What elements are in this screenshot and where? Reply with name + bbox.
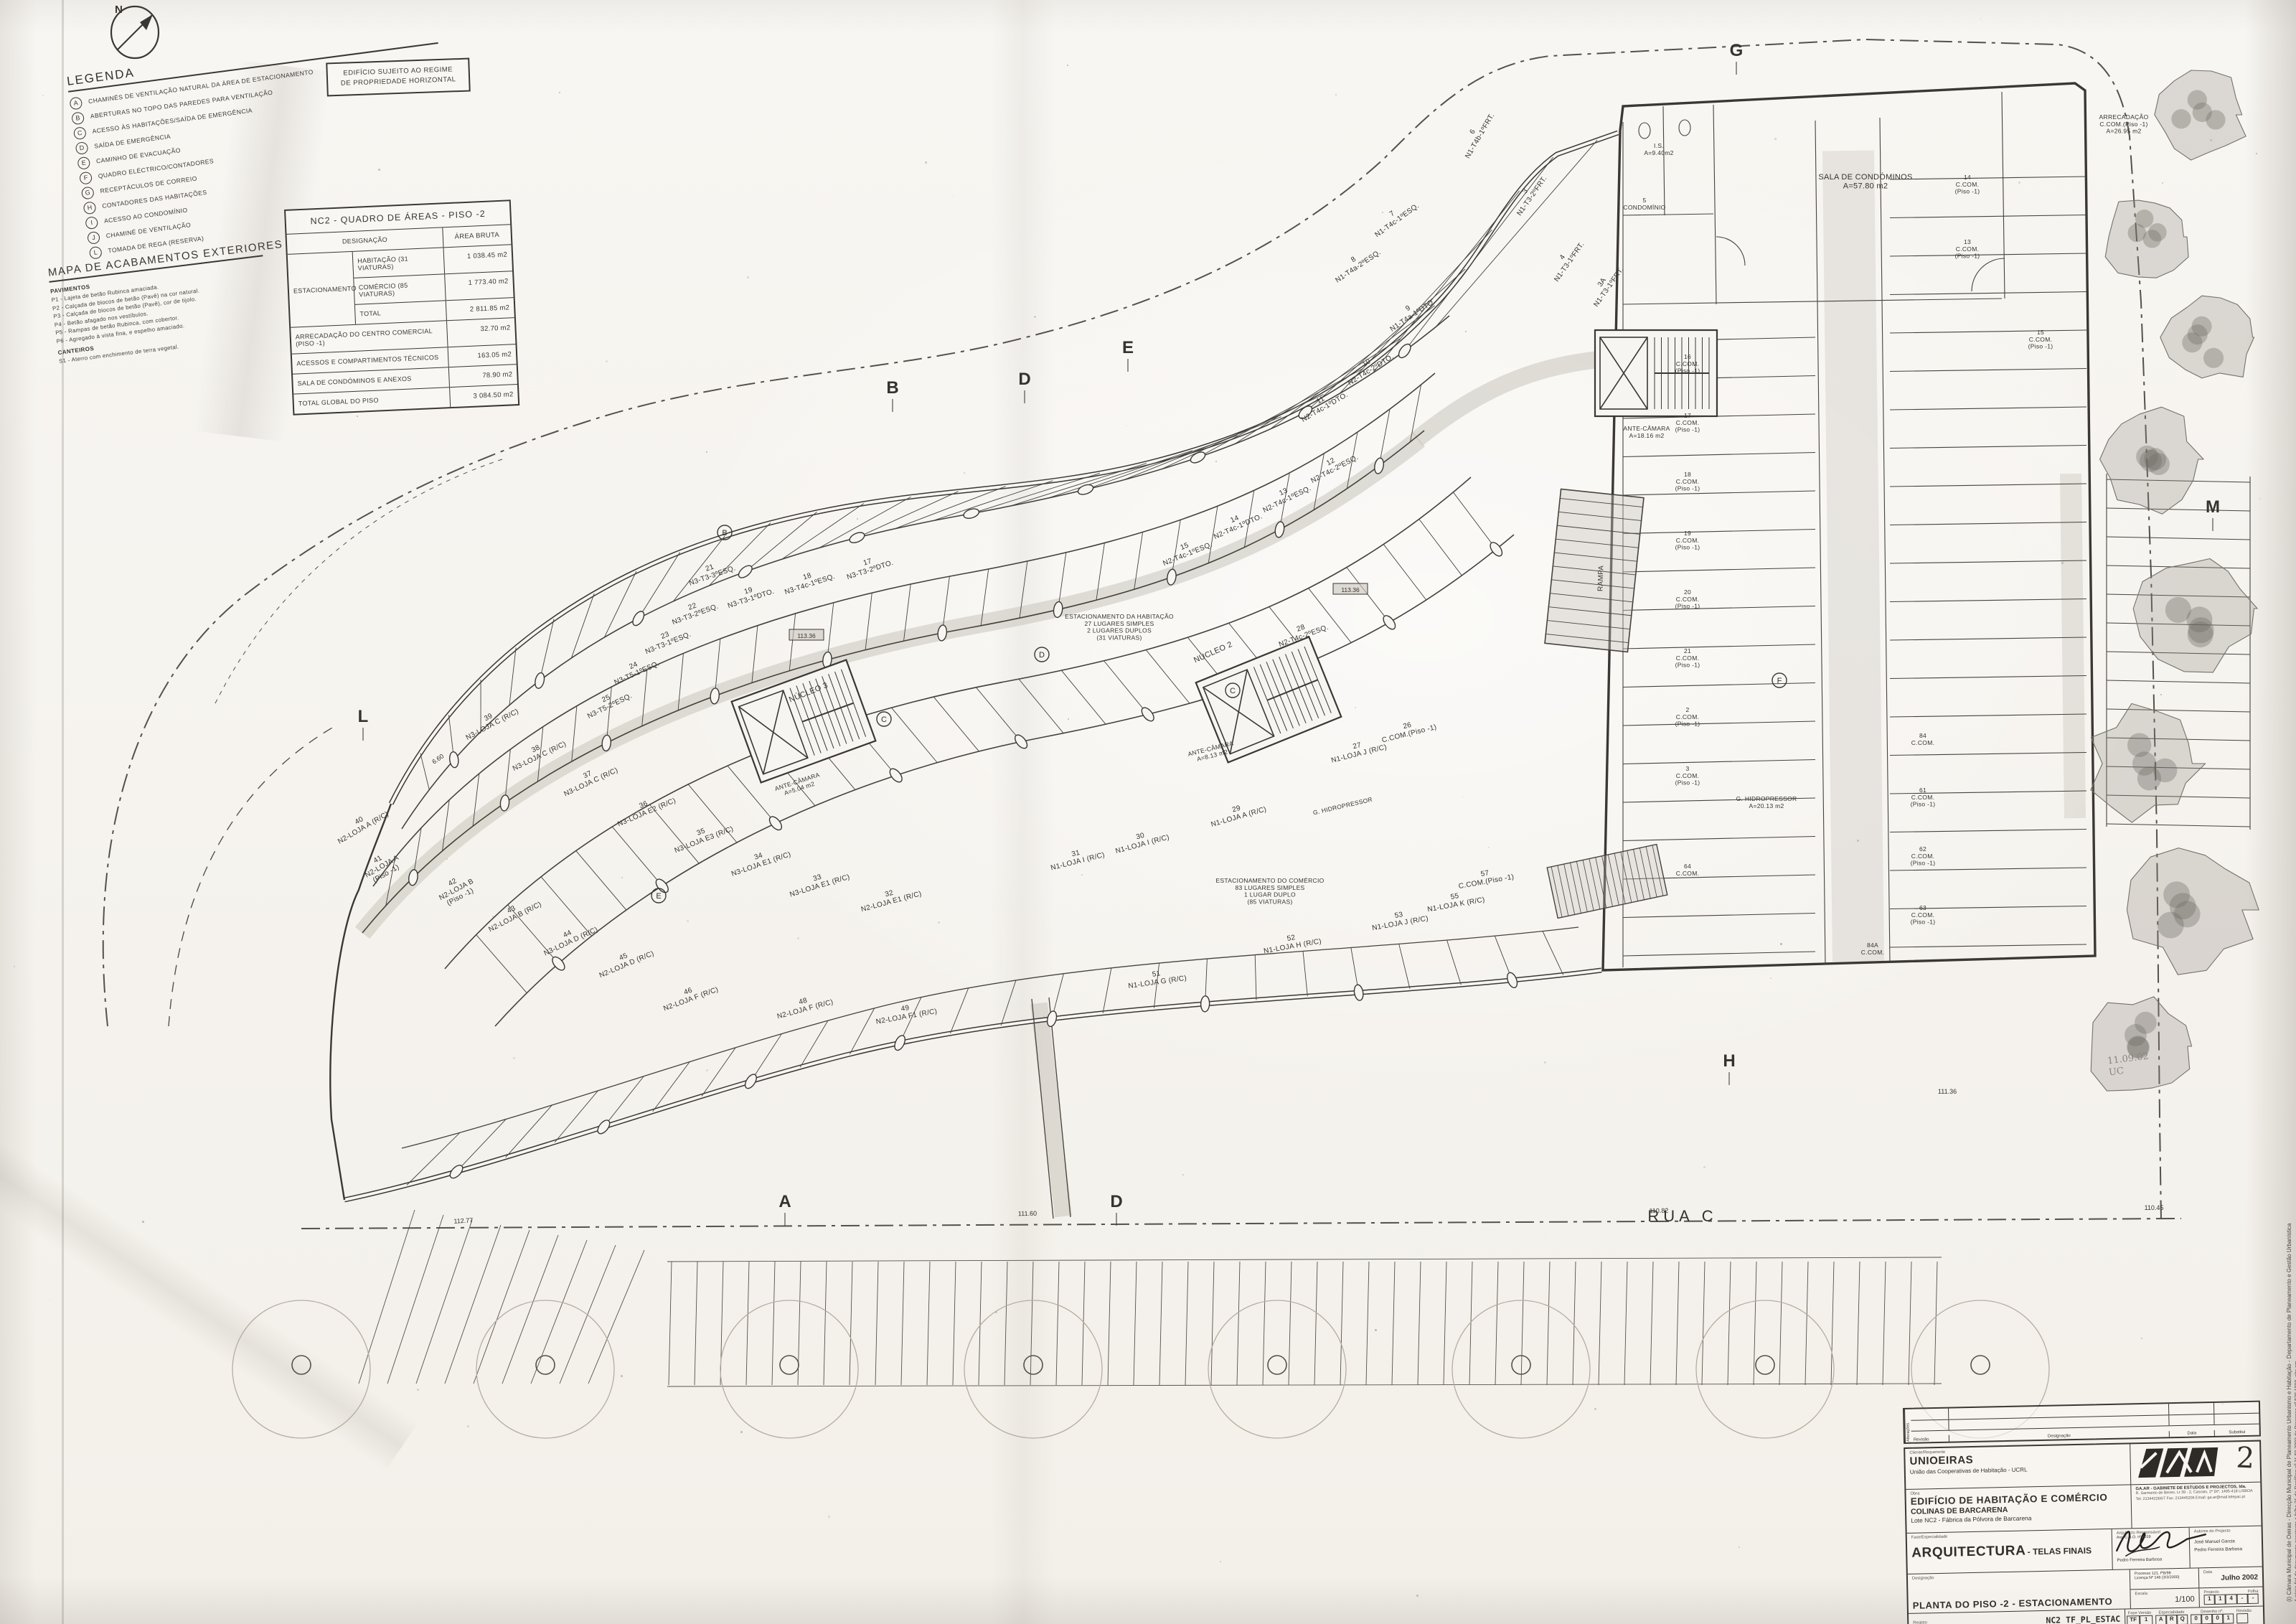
svg-text:C: C [881, 715, 887, 724]
svg-text:55N1-LOJA K (R/C): 55N1-LOJA K (R/C) [1426, 888, 1486, 914]
legend-key: B [71, 111, 85, 125]
scanned-drawing-sheet: N GBDELADHM CCDEFB 112.77111.60110.82110… [0, 0, 2296, 1624]
project-number-cells: 114-- [2204, 1593, 2259, 1605]
svg-text:64C.COM.: 64C.COM. [1676, 863, 1700, 877]
svg-text:G. HIDROPRESSORA=20.13 m2: G. HIDROPRESSORA=20.13 m2 [1736, 795, 1797, 809]
svg-text:3C.COM.(Piso -1): 3C.COM.(Piso -1) [1675, 765, 1700, 787]
date-col-label: Data [2185, 1430, 2198, 1436]
svg-text:L: L [358, 707, 369, 726]
svg-text:NÚCLEO 2: NÚCLEO 2 [1192, 639, 1234, 665]
svg-text:G. HIDROPRESSOR: G. HIDROPRESSOR [1312, 796, 1373, 817]
svg-text:15C.COM.(Piso -1): 15C.COM.(Piso -1) [2028, 329, 2053, 350]
north-arrow-icon: N [111, 4, 159, 58]
svg-text:H: H [1723, 1051, 1735, 1071]
firm-logo [2135, 1445, 2221, 1481]
replaces-col-label: Substitui [2226, 1430, 2247, 1436]
designation-col-label: Designação [2046, 1433, 2073, 1440]
svg-text:26C.COM.(Piso -1): 26C.COM.(Piso -1) [1379, 715, 1438, 745]
table-group-row: ESTACIONAMENTOHABITAÇÃO (31 VIATURAS)1 0… [288, 244, 514, 327]
svg-text:6.60: 6.60 [430, 752, 445, 765]
svg-text:RAMPA: RAMPA [1596, 565, 1605, 592]
svg-text:ESTACIONAMENTO DA HABITAÇÃO27: ESTACIONAMENTO DA HABITAÇÃO27 LUGARES SI… [1065, 613, 1174, 641]
svg-text:8N1-T4a-2ºESQ.: 8N1-T4a-2ºESQ. [1330, 242, 1383, 285]
municipal-certification-text: (i) Câmara Municipal de Oeiras - Direcçã… [2286, 583, 2296, 1602]
svg-text:D: D [1110, 1192, 1122, 1211]
svg-text:112.77: 112.77 [453, 1216, 473, 1224]
svg-text:113.36: 113.36 [1341, 586, 1360, 593]
svg-text:27N1-LOJA J (R/C): 27N1-LOJA J (R/C) [1328, 736, 1388, 765]
svg-text:C: C [1230, 687, 1236, 695]
cell-designation: HABITAÇÃO (31 VIATURAS) [353, 248, 444, 277]
svg-text:53N1-LOJA J (R/C): 53N1-LOJA J (R/C) [1370, 906, 1429, 932]
svg-text:34N3-LOJA E1 (R/C): 34N3-LOJA E1 (R/C) [728, 842, 792, 878]
desenho-cells: 0001 [2191, 1613, 2234, 1624]
svg-text:18C.COM.(Piso -1): 18C.COM.(Piso -1) [1675, 471, 1700, 492]
legend-key: C [73, 126, 87, 140]
drawing-designation: PLANTA DO PISO -2 - ESTACIONAMENTO [1913, 1596, 2126, 1611]
svg-text:ESTACIONAMENTO DO COMÉRCIO83 L: ESTACIONAMENTO DO COMÉRCIO83 LUGARES SIM… [1215, 877, 1324, 905]
svg-text:113.36: 113.36 [797, 632, 816, 639]
street-parking-band [359, 1210, 1942, 1386]
svg-text:3AN1-T3-1ºFRT.: 3AN1-T3-1ºFRT. [1586, 261, 1626, 309]
scale-value: 1/100 [2135, 1595, 2195, 1605]
svg-text:D: D [1039, 651, 1045, 660]
register-label: Registo [1913, 1620, 1927, 1624]
cell-area: 3 084.50 m2 [449, 385, 518, 407]
svg-text:24N3-T5-1ºESQ.: 24N3-T5-1ºESQ. [610, 652, 661, 687]
revision-side-label: Alterações [1904, 1409, 1911, 1442]
svg-text:40N2-LOJA A (R/C): 40N2-LOJA A (R/C) [332, 803, 390, 846]
svg-text:7N1-T4c-1ºESQ.: 7N1-T4c-1ºESQ. [1369, 195, 1421, 239]
handwritten-sheet-number: 2 [2235, 1441, 2255, 1475]
svg-text:M: M [2206, 497, 2220, 517]
svg-text:31N1-LOJA I (R/C): 31N1-LOJA I (R/C) [1048, 843, 1106, 873]
revision-col-label: Revisão [1911, 1437, 1932, 1443]
svg-text:ARRECADAÇÃOC.COM.(Piso -1)A=26: ARRECADAÇÃOC.COM.(Piso -1)A=26.95 m2 [2099, 113, 2149, 135]
svg-text:A: A [778, 1192, 791, 1211]
svg-text:14C.COM.(Piso -1): 14C.COM.(Piso -1) [1955, 174, 1980, 195]
svg-text:N: N [115, 4, 123, 16]
svg-text:F: F [1777, 677, 1782, 685]
licence-number: Licença Nº 146 (3/3/2000) [2135, 1575, 2194, 1581]
svg-text:G: G [1730, 41, 1744, 60]
svg-text:E: E [656, 892, 661, 901]
title-block: Alterações Revisão Designação Data Subst… [1903, 1401, 2265, 1624]
svg-text:25N3-T5-2ºESQ.: 25N3-T5-2ºESQ. [583, 685, 634, 721]
author-name: José Manuel Garcia [2194, 1539, 2257, 1545]
register-value: NC2_TF_PL_ESTAC [2046, 1614, 2120, 1624]
svg-text:57C.COM.(Piso -1): 57C.COM.(Piso -1) [1457, 865, 1515, 891]
svg-text:18N3-T4c-1ºESQ.: 18N3-T4c-1ºESQ. [781, 565, 836, 596]
cell-designation: COMÉRCIO (85 VIATURAS) [354, 274, 445, 304]
cell-area: 2 811.85 m2 [446, 298, 514, 320]
svg-text:B: B [886, 378, 898, 398]
svg-text:111.60: 111.60 [1018, 1210, 1037, 1217]
svg-text:17N3-T3-2ºDTO.: 17N3-T3-2ºDTO. [843, 551, 894, 581]
legend-key: D [75, 141, 89, 155]
legend-key: L [89, 246, 103, 260]
cell-area: 78.90 m2 [448, 365, 517, 387]
column-header-area: ÁREA BRUTA [442, 225, 511, 247]
svg-text:29N1-LOJA A (R/C): 29N1-LOJA A (R/C) [1208, 797, 1267, 829]
svg-text:32N2-LOJA E1 (R/C): 32N2-LOJA E1 (R/C) [858, 882, 923, 914]
svg-text:51N1-LOJA G (R/C): 51N1-LOJA G (R/C) [1126, 966, 1187, 990]
svg-text:I.S.A=9.40m2: I.S.A=9.40m2 [1644, 142, 1673, 156]
svg-text:33N3-LOJA E1 (R/C): 33N3-LOJA E1 (R/C) [786, 865, 851, 899]
svg-text:39N3-LOJA C (R/C): 39N3-LOJA C (R/C) [461, 700, 520, 742]
svg-text:62C.COM.(Piso -1): 62C.COM.(Piso -1) [1911, 845, 1936, 867]
phase-value: ARQUITECTURA [1911, 1543, 2026, 1560]
cell-area: 163.05 m2 [448, 344, 517, 367]
legend-key: E [77, 156, 90, 170]
phase-label: Fase/Especialidade [1911, 1535, 1948, 1540]
svg-text:21N3-T3-3ºESQ.: 21N3-T3-3ºESQ. [685, 556, 736, 587]
cell-area: 32.70 m2 [446, 318, 515, 347]
street-label: RUA C [1647, 1207, 1717, 1225]
legend-key: H [83, 201, 96, 215]
legend-key: F [79, 172, 93, 185]
svg-text:2C.COM.(Piso -1): 2C.COM.(Piso -1) [1675, 706, 1700, 728]
grid-letters: GBDELADHM [358, 41, 2220, 1226]
svg-text:63C.COM.(Piso -1): 63C.COM.(Piso -1) [1911, 904, 1936, 926]
svg-text:110.45: 110.45 [2145, 1204, 2164, 1211]
designation-label: Designação [1912, 1576, 1934, 1581]
especialidade-cells: ARQ [2155, 1615, 2188, 1624]
cell-area: 1 038.45 m2 [443, 245, 512, 273]
svg-text:111.36: 111.36 [1938, 1088, 1957, 1095]
svg-text:61C.COM.(Piso -1): 61C.COM.(Piso -1) [1911, 787, 1936, 808]
svg-text:19C.COM.(Piso -1): 19C.COM.(Piso -1) [1675, 530, 1700, 551]
svg-text:30N1-LOJA I (R/C): 30N1-LOJA I (R/C) [1113, 825, 1170, 855]
svg-text:4N1-T3-1ºFRT.: 4N1-T3-1ºFRT. [1546, 236, 1586, 283]
svg-text:44N3-LOJA D (R/C): 44N3-LOJA D (R/C) [540, 918, 600, 957]
svg-text:52N1-LOJA H (R/C): 52N1-LOJA H (R/C) [1261, 929, 1322, 955]
svg-text:42N2-LOJA B(Piso -1): 42N2-LOJA B(Piso -1) [434, 870, 479, 910]
cell-designation: TOTAL [355, 301, 446, 324]
svg-text:D: D [1018, 370, 1030, 389]
group-label: ESTACIONAMENTO [288, 252, 356, 327]
svg-text:19N3-T3-1ºDTO.: 19N3-T3-1ºDTO. [724, 580, 775, 610]
svg-text:49N2-LOJA F1 (R/C): 49N2-LOJA F1 (R/C) [874, 1000, 938, 1026]
fase-cells: TF1 [2127, 1615, 2152, 1624]
svg-text:5CONDOMÍNIO: 5CONDOMÍNIO [1623, 197, 1665, 211]
svg-text:6N1-T4b-1ºFRT.: 6N1-T4b-1ºFRT. [1457, 108, 1496, 159]
author-name: Pedro Ferreira Barbosa [2194, 1546, 2257, 1553]
legend-key: I [85, 216, 98, 230]
svg-text:23N3-T3-1ºESQ.: 23N3-T3-1ºESQ. [641, 623, 692, 656]
revision-table: Alterações Revisão Designação Data Subst… [1903, 1401, 2261, 1444]
legend-key: J [87, 231, 100, 245]
svg-text:ANTE-CÂMARAA=18.16 m2: ANTE-CÂMARAA=18.16 m2 [1623, 425, 1670, 439]
cell-area: 1 773.40 m2 [444, 271, 513, 300]
svg-text:45N2-LOJA D (R/C): 45N2-LOJA D (R/C) [595, 942, 655, 980]
phase-suffix: - TELAS FINAIS [2028, 1546, 2092, 1557]
property-regime-notice: EDIFÍCIO SUJEITO AO REGIME DE PROPRIEDAD… [326, 58, 471, 96]
svg-text:48N2-LOJA F (R/C): 48N2-LOJA F (R/C) [774, 990, 834, 1021]
svg-text:21C.COM.(Piso -1): 21C.COM.(Piso -1) [1675, 647, 1700, 669]
svg-text:20C.COM.(Piso -1): 20C.COM.(Piso -1) [1675, 588, 1700, 610]
certification-line: (i) Câmara Municipal de Oeiras - Direcçã… [2286, 583, 2292, 1602]
svg-text:13C.COM.(Piso -1): 13C.COM.(Piso -1) [1955, 238, 1980, 260]
svg-text:46N2-LOJA F (R/C): 46N2-LOJA F (R/C) [659, 978, 719, 1013]
date-value: Julho 2002 [2203, 1574, 2258, 1583]
svg-text:B: B [722, 529, 727, 538]
areas-table: NC2 - QUADRO DE ÁREAS - PISO -2 DESIGNAÇ… [284, 200, 519, 416]
legend-key: A [69, 96, 83, 110]
svg-text:E: E [1122, 338, 1134, 357]
authors-label: Autores do Projecto [2194, 1529, 2257, 1534]
svg-text:84C.COM.: 84C.COM. [1911, 732, 1935, 746]
legend-key: G [81, 186, 95, 200]
group-rows: HABITAÇÃO (31 VIATURAS)1 038.45 m2COMÉRC… [353, 245, 514, 324]
